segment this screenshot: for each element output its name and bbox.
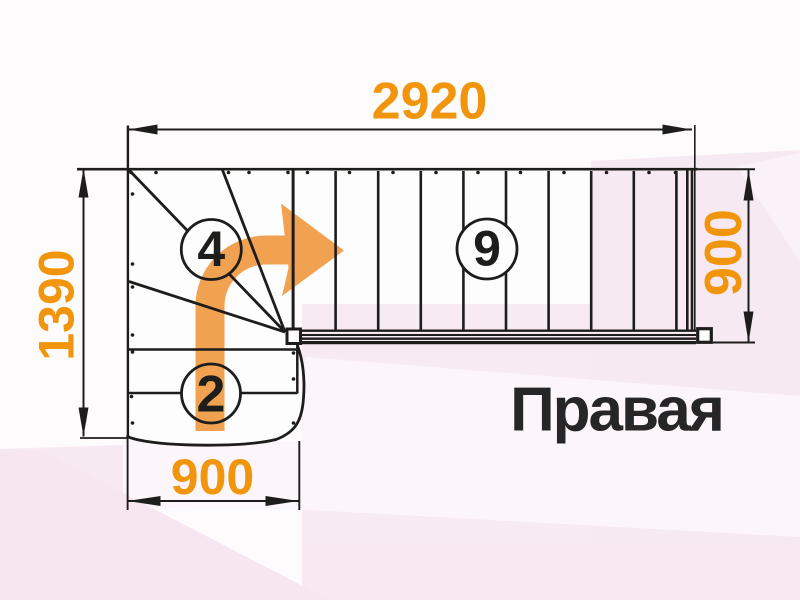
svg-text:4: 4: [197, 221, 225, 277]
svg-text:9: 9: [473, 221, 501, 277]
svg-text:900: 900: [695, 209, 753, 296]
svg-text:2: 2: [197, 366, 226, 424]
svg-text:900: 900: [171, 449, 254, 505]
svg-text:2920: 2920: [372, 73, 488, 131]
svg-text:1390: 1390: [29, 249, 85, 360]
svg-text:Правая: Правая: [510, 376, 723, 445]
